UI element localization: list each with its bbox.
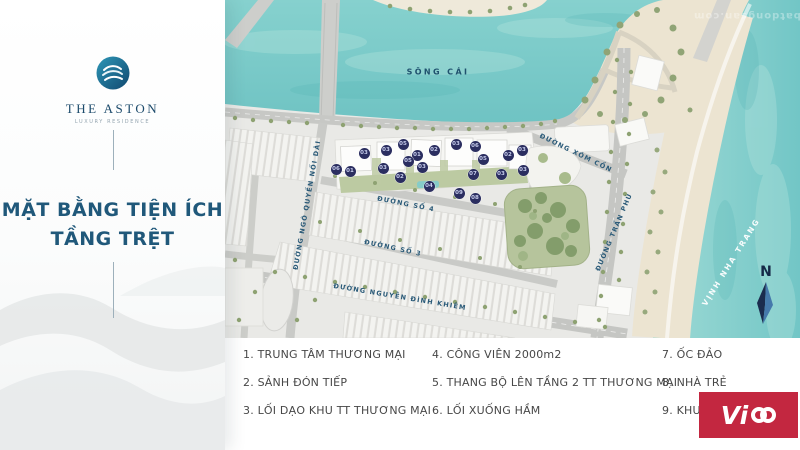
building-marker: 03 <box>518 165 529 176</box>
building-marker: 03 <box>496 169 507 180</box>
legend-item: 5. THANG BỘ LÊN TẦNG 2 TT THƯƠNG MẠI <box>432 376 677 389</box>
building-marker: 08 <box>470 193 481 204</box>
divider-line <box>113 262 114 318</box>
building-marker: 02 <box>503 150 514 161</box>
building-marker: 03 <box>381 145 392 156</box>
building-marker: 03 <box>517 145 528 156</box>
legend-item: 4. CÔNG VIÊN 2000m2 <box>432 348 677 361</box>
vico-ring-icon <box>760 407 776 423</box>
sidebar: THE ASTON LUXURY RESIDENCE MẶT BẰNG TIỆN… <box>0 0 225 450</box>
building-marker: 07 <box>468 169 479 180</box>
building-marker: 09 <box>454 188 465 199</box>
building-marker: 05 <box>403 156 414 167</box>
vico-logo-text: Vi <box>721 403 748 428</box>
page: SÔNG CÁI ĐƯỜNG XÓM CỒN ĐƯỜNG TRẦN PHÚ ĐƯ… <box>0 0 800 450</box>
brand-name: THE ASTON <box>0 101 225 117</box>
legend-item: 2. SẢNH ĐÓN TIẾP <box>243 376 431 389</box>
legend-item: 3. LỐI DẠO KHU TT THƯƠNG MẠI <box>243 404 431 417</box>
building-marker: 04 <box>424 181 435 192</box>
aston-logo-icon <box>96 56 130 90</box>
building-marker: 05 <box>478 154 489 165</box>
building-marker: 02 <box>429 145 440 156</box>
page-title-line2: TẦNG TRỆT <box>0 225 225 254</box>
legend-item: 7. ỐC ĐẢO <box>662 348 727 361</box>
markers-layer: 0303050102030605020306010305030203030704… <box>225 0 800 338</box>
brand-tagline: LUXURY RESIDENCE <box>0 119 225 125</box>
building-marker: 01 <box>345 166 356 177</box>
legend-item: 8. NHÀ TRẺ <box>662 376 727 389</box>
divider-line <box>113 130 114 170</box>
building-marker: 03 <box>451 139 462 150</box>
legend-item: 1. TRUNG TÂM THƯƠNG MẠI <box>243 348 431 361</box>
building-marker: 06 <box>331 164 342 175</box>
building-marker: 03 <box>359 148 370 159</box>
building-marker: 03 <box>378 163 389 174</box>
building-marker: 02 <box>395 172 406 183</box>
page-title-line1: MẶT BẰNG TIỆN ÍCH <box>0 196 225 225</box>
legend-column-1: 1. TRUNG TÂM THƯƠNG MẠI 2. SẢNH ĐÓN TIẾP… <box>243 348 431 432</box>
brand-block: THE ASTON LUXURY RESIDENCE <box>0 56 225 125</box>
legend-item: 6. LỐI XUỐNG HẦM <box>432 404 677 417</box>
legend-column-2: 4. CÔNG VIÊN 2000m2 5. THANG BỘ LÊN TẦNG… <box>432 348 677 432</box>
building-marker: 05 <box>398 139 409 150</box>
building-marker: 06 <box>470 141 481 152</box>
legend: 1. TRUNG TÂM THƯƠNG MẠI 2. SẢNH ĐÓN TIẾP… <box>225 338 800 450</box>
building-marker: 03 <box>417 162 428 173</box>
page-title: MẶT BẰNG TIỆN ÍCH TẦNG TRỆT <box>0 196 225 253</box>
site-map: SÔNG CÁI ĐƯỜNG XÓM CỒN ĐƯỜNG TRẦN PHÚ ĐƯ… <box>225 0 800 338</box>
vico-logo: Vi <box>699 392 798 438</box>
